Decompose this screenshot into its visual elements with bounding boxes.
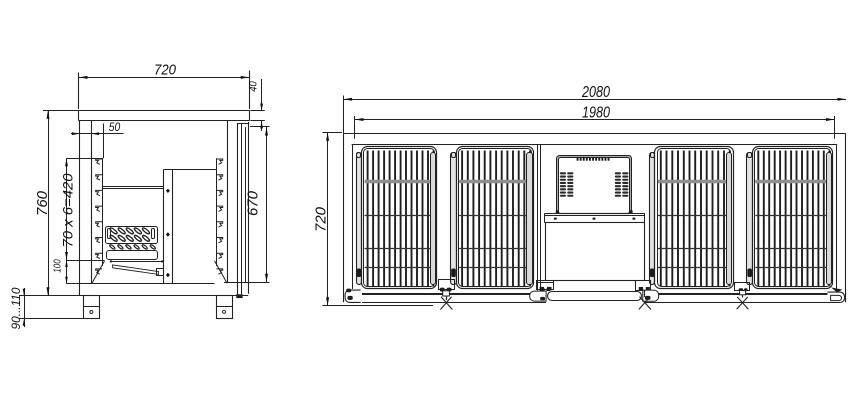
svg-text:70 x 6=420: 70 x 6=420 bbox=[60, 173, 76, 247]
svg-text:100: 100 bbox=[52, 259, 64, 273]
svg-text:50: 50 bbox=[109, 122, 121, 134]
svg-text:1980: 1980 bbox=[582, 104, 610, 121]
svg-text:760: 760 bbox=[34, 190, 51, 216]
svg-text:2080: 2080 bbox=[581, 84, 610, 101]
svg-text:720: 720 bbox=[313, 206, 330, 232]
svg-text:40: 40 bbox=[248, 81, 260, 92]
svg-text:670: 670 bbox=[245, 190, 262, 216]
svg-text:720: 720 bbox=[154, 62, 177, 79]
svg-text:90...110: 90...110 bbox=[11, 287, 23, 330]
